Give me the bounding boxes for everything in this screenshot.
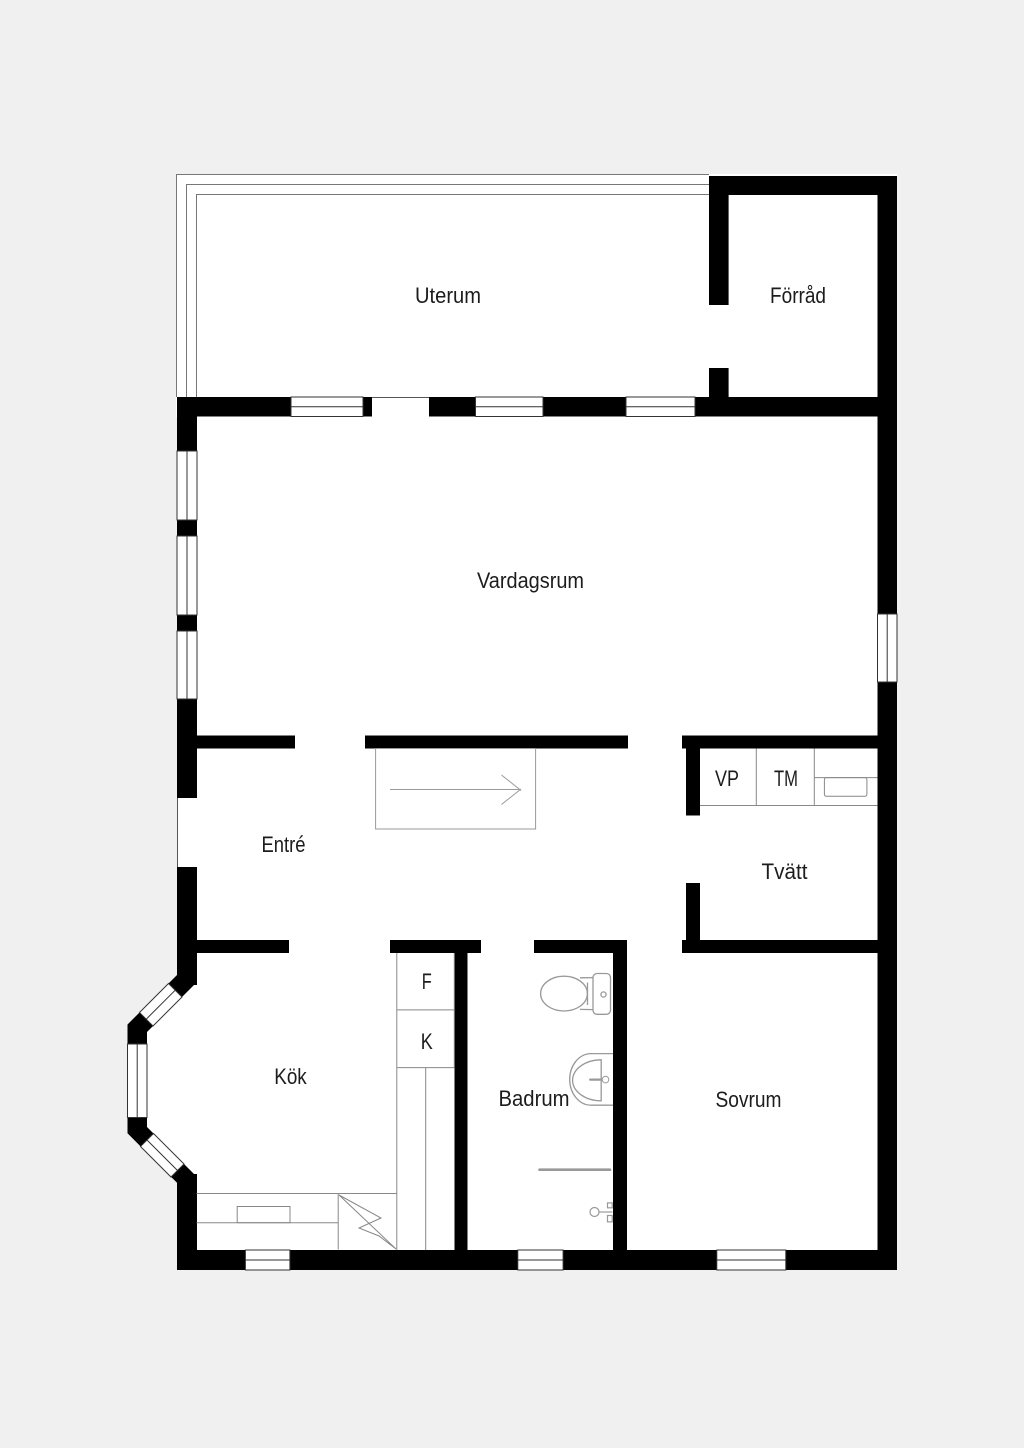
svg-text:Badrum: Badrum	[499, 1086, 570, 1111]
svg-text:Sovrum: Sovrum	[716, 1087, 782, 1112]
svg-text:Förråd: Förråd	[770, 283, 826, 308]
svg-text:Vardagsrum: Vardagsrum	[477, 568, 584, 593]
svg-text:TM: TM	[774, 766, 798, 791]
svg-text:Uterum: Uterum	[415, 283, 481, 308]
svg-text:VP: VP	[715, 766, 739, 791]
svg-text:K: K	[421, 1029, 433, 1054]
svg-text:Kök: Kök	[274, 1064, 307, 1089]
svg-text:F: F	[422, 969, 432, 994]
svg-text:Tvätt: Tvätt	[762, 859, 808, 884]
svg-text:Entré: Entré	[262, 832, 306, 857]
